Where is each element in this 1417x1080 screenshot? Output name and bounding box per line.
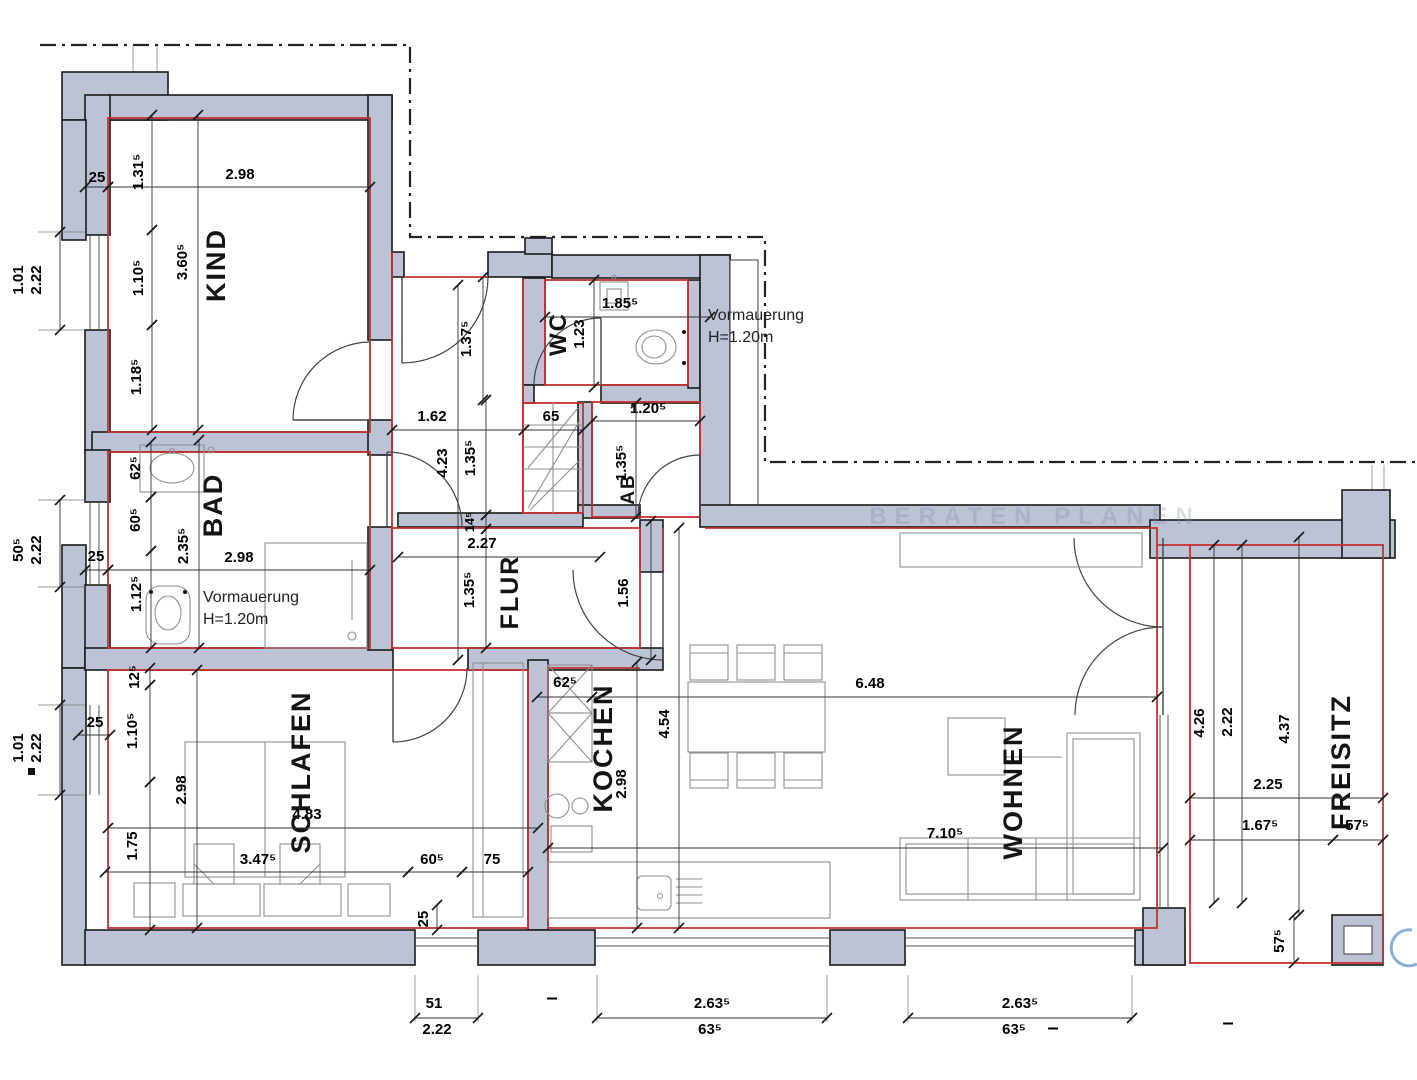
- dimension: 2.98: [103, 549, 375, 575]
- kitchen-counter: [548, 862, 830, 918]
- wc-toilet-icon: [636, 330, 686, 365]
- svg-text:63⁵: 63⁵: [1002, 1021, 1026, 1038]
- svg-text:1.56: 1.56: [615, 578, 632, 607]
- svg-text:1.01: 1.01: [10, 265, 27, 294]
- svg-text:2.98: 2.98: [225, 166, 254, 183]
- dimension: 2.22: [1219, 540, 1247, 908]
- svg-text:25: 25: [87, 714, 104, 731]
- dimension: 12⁵: [126, 663, 155, 690]
- svg-text:3.60⁵: 3.60⁵: [174, 244, 191, 280]
- dimension: 1.10⁵: [130, 225, 157, 330]
- terrace-double-door: [1074, 538, 1163, 715]
- dimension: 2.98: [173, 665, 202, 933]
- dimension: 4.83: [103, 806, 543, 833]
- svg-text:2.98: 2.98: [224, 549, 253, 566]
- svg-text:51: 51: [426, 995, 443, 1012]
- bedroom-cabinets: [134, 883, 390, 917]
- svg-text:62⁵: 62⁵: [127, 456, 144, 480]
- svg-text:1.35⁵: 1.35⁵: [461, 572, 478, 608]
- svg-text:–: –: [1222, 1012, 1233, 1034]
- dimension: 3.47⁵: [100, 851, 413, 877]
- room-label-freisitz: FREISITZ: [1326, 694, 1356, 830]
- svg-text:60⁵: 60⁵: [420, 851, 444, 868]
- floorplan-page: BERATEN PLANEN KINDWCBADABFLURSCHLAFENKO…: [0, 0, 1417, 1080]
- dimension: 1.20⁵: [587, 400, 705, 426]
- svg-text:2.22: 2.22: [28, 265, 45, 294]
- svg-text:1.23: 1.23: [571, 319, 588, 348]
- freisitz-pillar: [1332, 915, 1383, 965]
- svg-text:63⁵: 63⁵: [698, 1021, 722, 1038]
- bad-toilet-icon: [146, 586, 190, 644]
- dimension: 1.01: [10, 265, 27, 294]
- dimension: –: [546, 987, 557, 1009]
- svg-text:4.37: 4.37: [1276, 714, 1293, 743]
- svg-text:2.98: 2.98: [613, 769, 630, 798]
- svg-text:–: –: [546, 987, 557, 1009]
- svg-text:1.10⁵: 1.10⁵: [124, 713, 141, 749]
- svg-text:–: –: [1047, 1017, 1058, 1039]
- svg-text:57⁵: 57⁵: [1345, 817, 1369, 834]
- svg-text:1.01: 1.01: [10, 733, 27, 762]
- dimension: 2.63⁵: [903, 995, 1137, 1023]
- svg-text:2.22: 2.22: [1219, 707, 1236, 736]
- svg-text:2.27: 2.27: [467, 535, 496, 552]
- svg-text:H=1.20m: H=1.20m: [203, 611, 268, 628]
- svg-text:2.63⁵: 2.63⁵: [1002, 995, 1038, 1012]
- dimension: 1.31⁵: [130, 110, 157, 235]
- svg-text:25: 25: [88, 548, 105, 565]
- svg-text:4.26: 4.26: [1191, 708, 1208, 737]
- dimension: 1.01: [10, 733, 27, 762]
- dimension: 63⁵: [1002, 1021, 1026, 1038]
- dimension: 2.22: [28, 700, 65, 800]
- dimension: 1.75: [124, 777, 155, 935]
- room-label-kind: KIND: [201, 228, 231, 302]
- svg-text:1.37⁵: 1.37⁵: [458, 321, 475, 357]
- svg-text:2.98: 2.98: [173, 775, 190, 804]
- entrance-door: [402, 277, 488, 363]
- dimension: 60⁵: [127, 492, 156, 556]
- dimension: 6.48: [587, 675, 1162, 702]
- dimension: 4.54: [656, 523, 684, 933]
- room-label-bad: BAD: [198, 473, 228, 538]
- dimension: 25: [415, 900, 442, 935]
- room-label-wc: WC: [545, 312, 572, 356]
- svg-text:2.22: 2.22: [422, 1021, 451, 1038]
- svg-text:65: 65: [543, 408, 560, 425]
- dimension: 1.10⁵: [124, 680, 155, 787]
- room-label-wohnen: WOHNEN: [998, 725, 1028, 860]
- dimension: 1.18⁵: [128, 320, 157, 435]
- dimension: 60⁵: [403, 851, 467, 877]
- dining-table: [688, 682, 825, 752]
- dimension: 1.23: [571, 275, 599, 392]
- svg-text:Vormauerung: Vormauerung: [203, 589, 299, 606]
- svg-text:1.35⁵: 1.35⁵: [462, 440, 479, 476]
- svg-text:14⁵: 14⁵: [462, 512, 477, 533]
- dimension: 1.67⁵: [1185, 817, 1338, 845]
- svg-text:2.25: 2.25: [1253, 776, 1282, 793]
- watermark: BERATEN PLANEN: [869, 503, 1201, 530]
- svg-text:7.10⁵: 7.10⁵: [927, 825, 963, 842]
- dimension: –: [1222, 1012, 1233, 1034]
- dimension: 2.22: [422, 1021, 451, 1038]
- svg-text:1.31⁵: 1.31⁵: [130, 154, 147, 190]
- sideboard: [900, 533, 1142, 567]
- svg-text:3.47⁵: 3.47⁵: [240, 851, 276, 868]
- svg-text:1.10⁵: 1.10⁵: [130, 260, 147, 296]
- ab-door: [638, 455, 700, 517]
- dimension: 51: [410, 995, 483, 1023]
- dimension: –: [1047, 1017, 1058, 1039]
- logo-fragment: [1391, 930, 1417, 966]
- svg-text:1.67⁵: 1.67⁵: [1242, 817, 1278, 834]
- svg-text:4.54: 4.54: [656, 709, 673, 739]
- svg-text:1.62: 1.62: [417, 408, 446, 425]
- dimension: 4.26: [1191, 540, 1219, 908]
- dimension: 1.35⁵: [462, 395, 491, 520]
- svg-text:25: 25: [415, 911, 432, 928]
- dimension: 75: [457, 851, 533, 877]
- dimension: 1.12⁵: [128, 546, 156, 653]
- svg-text:75: 75: [484, 851, 501, 868]
- dimension: 1.37⁵: [458, 272, 488, 405]
- svg-text:H=1.20m: H=1.20m: [708, 329, 773, 346]
- dining-chairs: [690, 645, 822, 788]
- kind-door: [293, 342, 370, 420]
- room-label-schlafen: SCHLAFEN: [286, 691, 316, 854]
- dimension: 4.37: [1276, 532, 1304, 920]
- svg-text:1.18⁵: 1.18⁵: [128, 359, 145, 395]
- svg-text:Vormauerung: Vormauerung: [708, 307, 804, 324]
- svg-text:2.63⁵: 2.63⁵: [694, 995, 730, 1012]
- dimension: 2.22: [28, 495, 65, 592]
- svg-text:50⁵: 50⁵: [10, 538, 27, 562]
- svg-text:1.35⁵: 1.35⁵: [613, 445, 630, 481]
- svg-text:1.75: 1.75: [124, 831, 141, 860]
- svg-text:2.22: 2.22: [28, 733, 45, 762]
- dimension: 2.22: [28, 227, 65, 335]
- svg-text:12⁵: 12⁵: [126, 665, 143, 689]
- svg-text:2.22: 2.22: [28, 535, 45, 564]
- svg-text:25: 25: [89, 169, 106, 186]
- svg-text:60⁵: 60⁵: [127, 508, 144, 532]
- dimension: 2.63⁵: [592, 995, 832, 1023]
- svg-text:1.85⁵: 1.85⁵: [602, 295, 638, 312]
- svg-text:57⁵: 57⁵: [1271, 929, 1288, 953]
- svg-text:62⁵: 62⁵: [553, 674, 577, 691]
- svg-text:6.48: 6.48: [855, 675, 884, 692]
- schlafen-door: [393, 668, 467, 742]
- wardrobe: [473, 663, 523, 917]
- room-label-flur: FLUR: [496, 555, 524, 630]
- floorplan-drawing: BERATEN PLANEN KINDWCBADABFLURSCHLAFENKO…: [0, 0, 1417, 1080]
- svg-text:2.35⁵: 2.35⁵: [175, 528, 192, 564]
- svg-text:1.12⁵: 1.12⁵: [128, 576, 145, 612]
- svg-text:4.83: 4.83: [292, 806, 321, 823]
- svg-text:4.23: 4.23: [434, 448, 451, 477]
- dimension: 3.60⁵: [174, 110, 203, 435]
- section-mark: [28, 768, 35, 775]
- dimension: 2.25: [1185, 776, 1388, 803]
- vormauerung-bad: VormauerungH=1.20m: [203, 589, 299, 628]
- dimension: 63⁵: [698, 1021, 722, 1038]
- dimension: 50⁵: [10, 538, 27, 562]
